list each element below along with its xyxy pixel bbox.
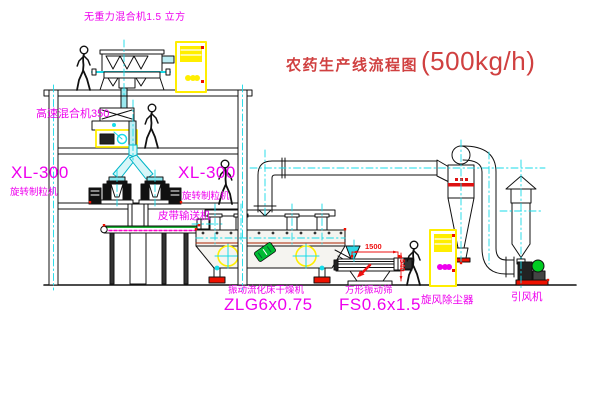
title-capacity: (500kg/h) (421, 46, 535, 77)
control-cabinet-top (176, 42, 206, 92)
label-granulator-center-name: 旋转制粒机 (182, 192, 230, 202)
label-dryer-model: ZLG6x0.75 (224, 296, 313, 313)
high-speed-mixer (92, 96, 137, 147)
label-granulator-center-model: XL-300 (178, 164, 236, 181)
drawing-title: 农药生产线流程图 (500kg/h) (286, 46, 535, 77)
label-induced-draft-fan: 引风机 (511, 292, 543, 303)
label-belt-conveyor: 皮带输送机 (158, 211, 211, 222)
person-top-floor (77, 46, 90, 90)
cad-flow-diagram-canvas: 农药生产线流程图 (500kg/h) 无重力混合机1.5 立方 高速混合机350… (0, 0, 600, 403)
cyclone-logo-marks (455, 178, 468, 181)
title-text: 农药生产线流程图 (286, 54, 418, 75)
fluid-bed-dryer (196, 210, 350, 283)
dimension-sieve-length: 1500 (365, 243, 382, 251)
exhaust-duct (254, 158, 449, 212)
label-sieve-model: FS0.6x1.5 (339, 296, 421, 313)
label-granulator-left-name: 旋转制粒机 (10, 188, 58, 198)
label-gravity-mixer: 无重力混合机1.5 立方 (84, 13, 185, 23)
person-second-floor (145, 104, 158, 148)
dimension-sieve-height: 540 (399, 259, 407, 272)
granulator-left (89, 181, 133, 204)
label-granulator-left-model: XL-300 (11, 164, 69, 181)
granulator-right (139, 181, 181, 204)
gravity-free-mixer (92, 50, 174, 108)
label-cyclone: 旋风除尘器 (421, 295, 474, 306)
control-cabinet-bottom (430, 230, 456, 286)
label-high-speed-mixer: 高速混合机350 (36, 109, 109, 120)
